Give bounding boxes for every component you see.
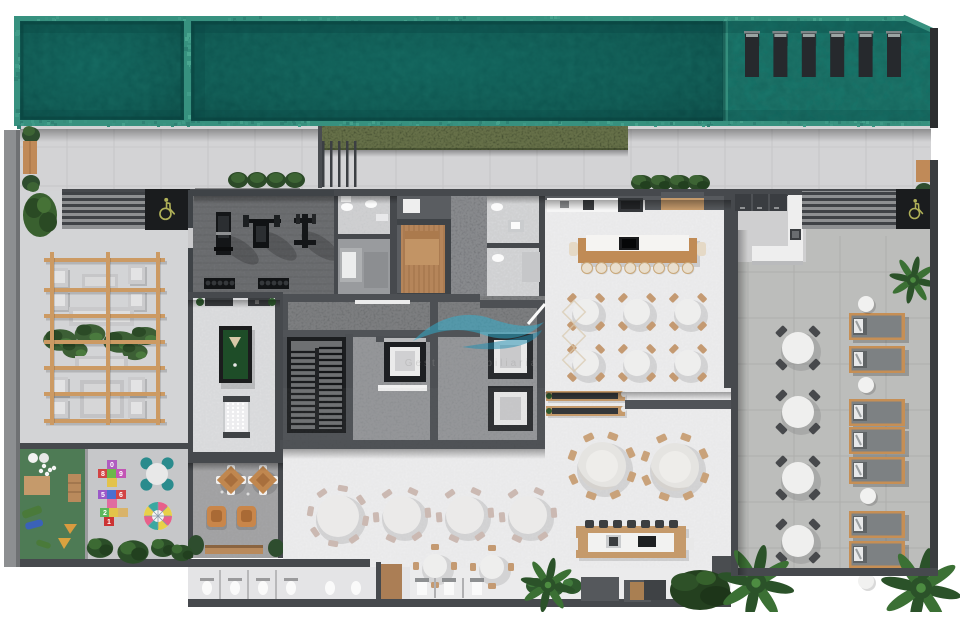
svg-text:6: 6 (119, 492, 123, 499)
svg-text:0: 0 (110, 462, 114, 469)
svg-text:8: 8 (101, 471, 105, 478)
svg-text:1: 1 (107, 519, 111, 526)
svg-text:2: 2 (103, 510, 107, 517)
svg-text:5: 5 (101, 492, 105, 499)
svg-text:Gestao Imobiliaria: Gestao Imobiliaria (405, 358, 540, 369)
svg-text:9: 9 (119, 471, 123, 478)
